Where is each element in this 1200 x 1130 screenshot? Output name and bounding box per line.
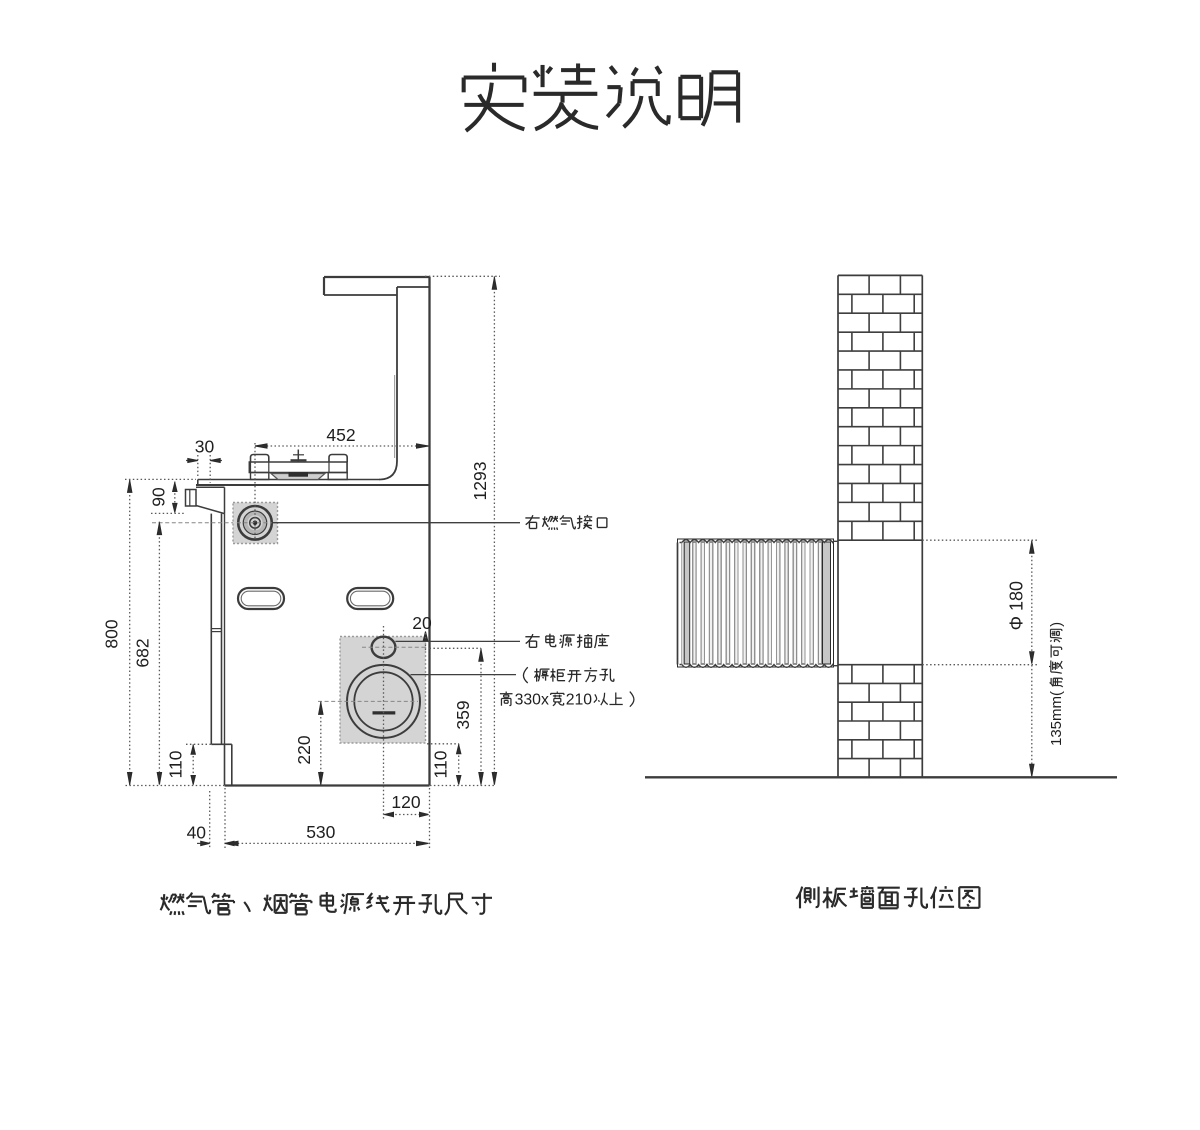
svg-text:): ) xyxy=(1048,622,1065,627)
svg-text:110: 110 xyxy=(431,750,451,778)
svg-text:220: 220 xyxy=(294,735,314,764)
svg-text:210: 210 xyxy=(566,692,593,709)
svg-text:1293: 1293 xyxy=(470,462,490,501)
svg-text:682: 682 xyxy=(133,638,153,667)
svg-text:135mm(: 135mm( xyxy=(1048,691,1065,746)
svg-text:800: 800 xyxy=(102,619,122,648)
svg-text:110: 110 xyxy=(166,750,186,778)
svg-text:30: 30 xyxy=(195,437,215,457)
svg-text:330x: 330x xyxy=(515,692,549,709)
svg-text:120: 120 xyxy=(391,792,420,812)
svg-text:530: 530 xyxy=(306,822,335,842)
svg-text:Φ 180: Φ 180 xyxy=(1007,581,1027,630)
svg-text:452: 452 xyxy=(326,425,355,445)
svg-text:20: 20 xyxy=(412,613,432,633)
svg-text:359: 359 xyxy=(453,700,473,729)
svg-text:40: 40 xyxy=(187,823,207,843)
svg-text:90: 90 xyxy=(149,487,169,507)
